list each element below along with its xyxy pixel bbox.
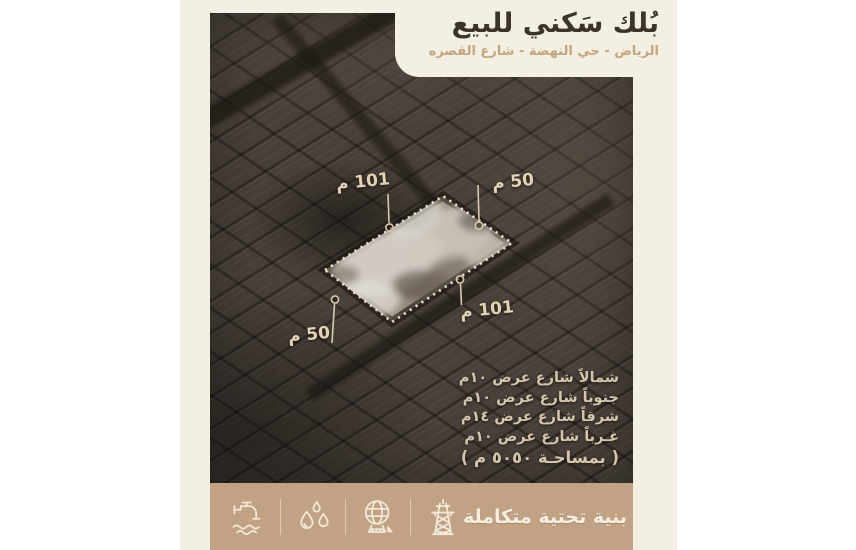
icon-divider (410, 499, 411, 535)
globe-icon (358, 496, 398, 538)
boundary-south: جنوباً شارع عرض ١٠م (459, 389, 619, 409)
site-boundaries-info: شمالاً شارع عرض ١٠م جنوباً شارع عرض ١٠م … (459, 369, 619, 468)
page-title: بُلك سَكني للبيع (395, 7, 659, 41)
boundary-north: شمالاً شارع عرض ١٠م (459, 369, 619, 389)
location-subtitle: الرياض - حي النهضة - شارع القصره (395, 44, 659, 59)
plot-area-text: ( بمساحـة ٥٠٥٠ م ) (459, 448, 619, 468)
icon-divider (345, 499, 346, 535)
infrastructure-label: بنية تحتية متكاملة (463, 506, 627, 528)
real-estate-flyer: { "colors": { "page_bg": "#ffffff", "pan… (0, 0, 856, 550)
flyer-panel: 101 م 50 م 101 م 50 م شمالاً شارع عرض ١٠… (180, 0, 677, 550)
satellite-map: 101 م 50 م 101 م 50 م شمالاً شارع عرض ١٠… (210, 13, 633, 483)
boundary-west: غـرباً شارع عرض ١٠م (459, 428, 619, 448)
boundary-east: شرقاً شارع عرض ١٤م (459, 408, 619, 428)
electricity-tower-icon (423, 496, 463, 538)
water-tap-icon (228, 496, 268, 538)
infrastructure-bar: بنية تحتية متكاملة (210, 483, 633, 550)
title-box: بُلك سَكني للبيع الرياض - حي النهضة - شا… (395, 0, 677, 77)
icon-divider (280, 499, 281, 535)
water-drops-icon (293, 496, 333, 538)
